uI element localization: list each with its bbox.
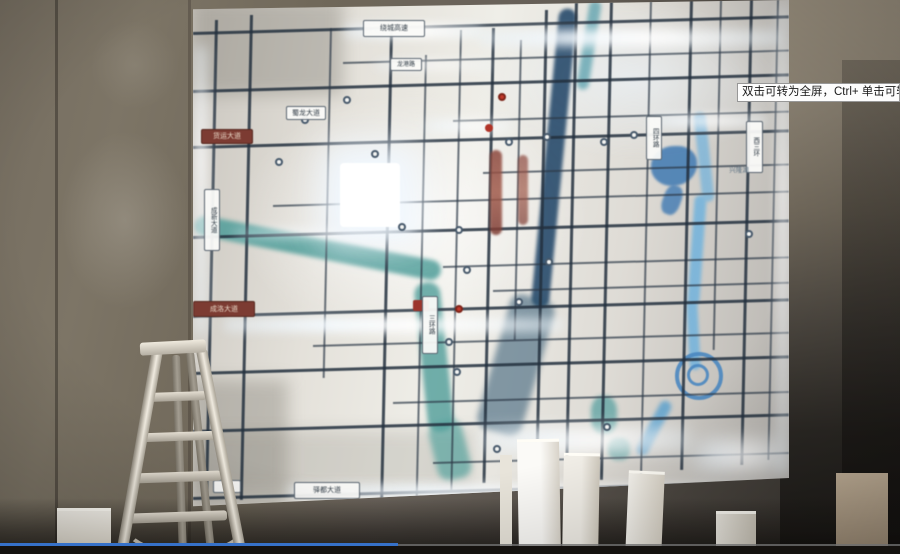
wall-seam bbox=[55, 0, 58, 554]
poi-marker-icon bbox=[505, 138, 513, 146]
red-dot-marker bbox=[485, 124, 493, 132]
poi-marker-icon bbox=[603, 423, 611, 431]
lake-tail bbox=[658, 183, 685, 217]
poi-marker-icon bbox=[455, 226, 463, 234]
poi-marker-icon bbox=[371, 150, 379, 158]
poi-marker-icon bbox=[745, 230, 753, 238]
led-glow-strip bbox=[480, 30, 780, 46]
poi-marker-icon bbox=[545, 258, 553, 266]
poi-marker-icon bbox=[493, 445, 501, 453]
led-glow-strip bbox=[223, 318, 563, 332]
player-control-bar[interactable] bbox=[0, 546, 900, 554]
road-label: 货运大道 bbox=[201, 129, 253, 144]
video-frame[interactable]: 绕城高速 货运大道 成洛大道 蜀龙大道 三环路 四环路 西三环 成新大道 驿都大… bbox=[0, 0, 900, 554]
led-glow-strip bbox=[423, 120, 513, 132]
led-glow-strip bbox=[480, 428, 690, 452]
poi-marker-icon bbox=[275, 158, 283, 166]
led-glow-strip bbox=[778, 5, 788, 475]
poi-marker-icon bbox=[515, 298, 523, 306]
wall-light-streak bbox=[60, 130, 190, 310]
road-label: 蜀龙大道 bbox=[286, 106, 326, 120]
model-block bbox=[836, 473, 888, 554]
lake-label: 兴隆湖 bbox=[723, 166, 755, 176]
model-block bbox=[517, 439, 561, 554]
led-glow-strip bbox=[233, 228, 413, 238]
project-site-highlight bbox=[340, 163, 400, 227]
poi-marker-icon bbox=[343, 96, 351, 104]
poi-marker-icon bbox=[630, 131, 638, 139]
model-block bbox=[500, 455, 512, 554]
model-block bbox=[562, 453, 600, 554]
road-label: 三环路 bbox=[422, 296, 438, 354]
poi-marker-icon bbox=[398, 223, 406, 231]
road-label: 四环路 bbox=[646, 116, 662, 160]
poi-marker-icon bbox=[453, 368, 461, 376]
model-block bbox=[625, 470, 665, 554]
led-glow-strip bbox=[693, 440, 783, 470]
road-label: 绕城高速 bbox=[363, 20, 425, 37]
poi-marker-icon bbox=[543, 133, 551, 141]
poi-marker-icon bbox=[445, 338, 453, 346]
poi-marker-icon bbox=[455, 305, 463, 313]
red-road-strip bbox=[518, 155, 528, 225]
poi-marker-icon bbox=[600, 138, 608, 146]
road-label-blank bbox=[213, 480, 241, 493]
poi-marker-icon bbox=[498, 93, 506, 101]
canal-loop-inner bbox=[687, 364, 709, 386]
wall-light-streak bbox=[90, 20, 180, 110]
road-label: 成新大道 bbox=[204, 189, 220, 251]
canal-segment bbox=[687, 195, 707, 306]
road-label: 龙港路 bbox=[390, 58, 422, 71]
map-panel: 绕城高速 货运大道 成洛大道 蜀龙大道 三环路 四环路 西三环 成新大道 驿都大… bbox=[193, 0, 789, 514]
poi-marker-icon bbox=[463, 266, 471, 274]
red-road-strip bbox=[490, 150, 502, 235]
road-label: 成洛大道 bbox=[193, 301, 255, 317]
fullscreen-tooltip: 双击可转为全屏，Ctrl+ 单击可转为 bbox=[737, 83, 900, 102]
map-artwork: 绕城高速 货运大道 成洛大道 蜀龙大道 三环路 四环路 西三环 成新大道 驿都大… bbox=[193, 0, 789, 514]
road-label: 驿都大道 bbox=[294, 482, 360, 499]
